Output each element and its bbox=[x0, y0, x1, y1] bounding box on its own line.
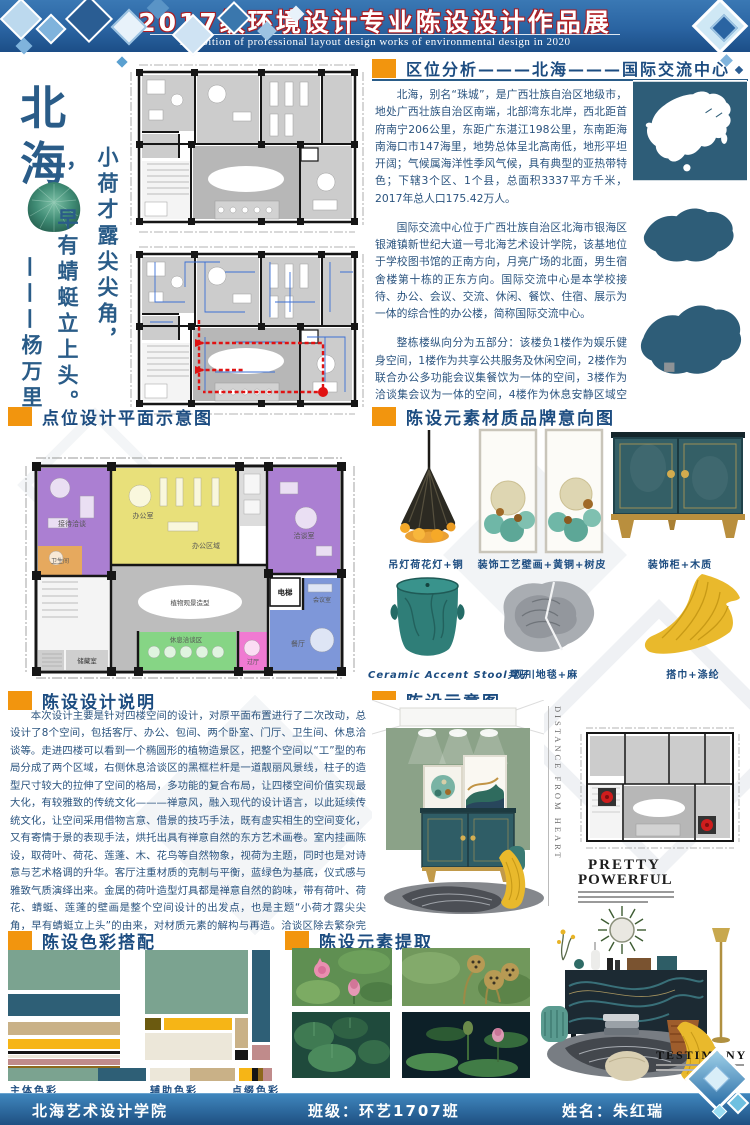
swatch-cream-block bbox=[145, 1033, 232, 1060]
swatch-teal bbox=[8, 994, 120, 1016]
poem-line-1: 小荷才露尖尖角， bbox=[92, 146, 122, 376]
swatch-tan-column bbox=[235, 1018, 248, 1048]
strip-main-teal bbox=[98, 1068, 146, 1081]
region-map-2 bbox=[633, 286, 747, 406]
footer-name: 姓名：朱红瑞 bbox=[562, 1100, 664, 1121]
magazine-smalltext-bar bbox=[578, 891, 674, 893]
lotus-photo-seedpods bbox=[402, 948, 530, 1006]
swatch-black bbox=[8, 1051, 120, 1054]
magazine-text: PRETTY POWERFUL bbox=[578, 858, 688, 903]
section-bullet bbox=[372, 59, 396, 78]
room-label-rest: 休息洽谈区 bbox=[170, 635, 203, 644]
design-notes-text: 本次设计主要是针对四楼空间的设计，对原平面布置进行了二次改动，总设计了8个空间，… bbox=[10, 708, 366, 930]
diamond-decor bbox=[735, 66, 743, 74]
poster-subtitle: Exhibition of professional layout design… bbox=[0, 36, 750, 48]
section-title-materials: 陈设元素材质品牌意向图 bbox=[406, 404, 615, 429]
rock-rug-image bbox=[492, 572, 600, 664]
display-location-plan bbox=[578, 724, 742, 852]
poem-author: ———杨万里 bbox=[16, 256, 46, 416]
section-bullet bbox=[8, 407, 32, 426]
room-label-hall: 过厅 bbox=[247, 658, 259, 666]
material-caption-panels: 装饰工艺壁画+黄铜+树皮 bbox=[462, 556, 622, 571]
room-label-feature: 植物观景造型 bbox=[171, 598, 211, 607]
material-caption-stool: Ceramic Accent Stool凳子 bbox=[368, 666, 490, 681]
strip-accent-rose bbox=[263, 1068, 272, 1081]
room-label-elevator: 电梯 bbox=[278, 587, 293, 597]
location-paragraphs: 北海，别名“珠城”，是广西壮族自治区地级市，地处广西壮族自治区南端，北部湾东北岸… bbox=[375, 86, 627, 433]
magazine-line-1: PRETTY bbox=[588, 858, 688, 873]
section-materials: 陈设元素材质品牌意向图 bbox=[372, 404, 615, 429]
decor-cabinet-image bbox=[608, 428, 748, 550]
strip-main-sage bbox=[8, 1068, 98, 1081]
material-caption-fabric: 搭巾+涤纶 bbox=[642, 666, 744, 681]
lotus-photo-leaves bbox=[292, 1012, 390, 1078]
footer-class: 班级：环艺1707班 bbox=[308, 1100, 460, 1121]
magazine-smalltext-bar bbox=[578, 896, 674, 898]
swatch-tan bbox=[8, 1022, 120, 1035]
room-label-meeting: 会议室 bbox=[313, 596, 331, 604]
wall-quote-text: DISTANCE FROM HEART bbox=[548, 706, 563, 906]
swatch-cream bbox=[8, 1055, 120, 1058]
ceramic-stool-image bbox=[385, 574, 470, 664]
section-bullet bbox=[8, 931, 32, 950]
room-label-office: 办公室 bbox=[133, 511, 154, 520]
wall-art-panels-image bbox=[478, 428, 604, 554]
floor-plan-circulation bbox=[125, 242, 370, 422]
room-label-talk: 洽谈室 bbox=[294, 531, 315, 540]
room-label-wc: 卫生间 bbox=[51, 557, 69, 565]
swatch-rose bbox=[8, 1059, 120, 1065]
swatch-yellow-bar bbox=[164, 1018, 232, 1030]
section-title-location: 区位分析———北海———国际交流中心 bbox=[406, 56, 730, 80]
section-location: 区位分析———北海———国际交流中心 bbox=[372, 56, 730, 80]
fabric-throw-image bbox=[638, 568, 748, 664]
location-paragraph-1: 北海，别名“珠城”，是广西壮族自治区地级市，地处广西壮族自治区南端，北部湾东北岸… bbox=[375, 86, 627, 207]
maps-panel bbox=[633, 80, 747, 402]
location-paragraph-2: 国际交流中心位于广西壮族自治区北海市银海区银滩镇新世纪大道一号北海艺术设计学院，… bbox=[375, 219, 627, 323]
swatch-teal-column bbox=[252, 950, 270, 1042]
swatch-yellow bbox=[8, 1039, 120, 1049]
material-caption-rug: 观川地毯+麻 bbox=[495, 666, 597, 681]
colored-floor-plan: 接待洽谈 卫生间 办公室 办公区域 洽谈室 会议室 餐厅 过厅 休息洽谈区 电梯… bbox=[8, 426, 370, 684]
room-label-dining: 餐厅 bbox=[291, 639, 305, 648]
magazine-line-2: POWERFUL bbox=[578, 873, 688, 888]
swatch-rose-bar bbox=[252, 1045, 270, 1060]
swatch-sage-large bbox=[145, 950, 248, 1014]
lotus-photo-flowers bbox=[292, 948, 392, 1006]
room-label-storage: 储藏室 bbox=[77, 656, 97, 665]
lotus-photo-pond bbox=[402, 1012, 530, 1078]
header-rule bbox=[150, 34, 620, 35]
strip-accent-yellow bbox=[239, 1068, 252, 1081]
pendant-lamp-image bbox=[385, 430, 470, 554]
city-name-comma: ， bbox=[66, 142, 88, 174]
interior-render-image bbox=[372, 700, 544, 924]
poster: 2017级环境设计专业陈设设计作品展 Exhibition of profess… bbox=[0, 0, 750, 1125]
room-label-office-area: 办公区域 bbox=[192, 541, 220, 550]
strip-aux-cream bbox=[150, 1068, 190, 1081]
region-map-1 bbox=[633, 186, 747, 286]
swatch-olive-small bbox=[145, 1018, 161, 1030]
swatch-sage bbox=[8, 950, 120, 990]
swatch-black-small bbox=[235, 1050, 248, 1060]
floor-plan-original bbox=[125, 60, 370, 240]
strip-aux-tan bbox=[190, 1068, 235, 1081]
footer-school: 北海艺术设计学院 bbox=[32, 1100, 168, 1121]
room-label-reception: 接待洽谈 bbox=[58, 519, 86, 528]
section-bullet bbox=[372, 407, 396, 426]
sunburst-mirror-icon bbox=[598, 906, 646, 954]
china-map bbox=[633, 80, 747, 182]
